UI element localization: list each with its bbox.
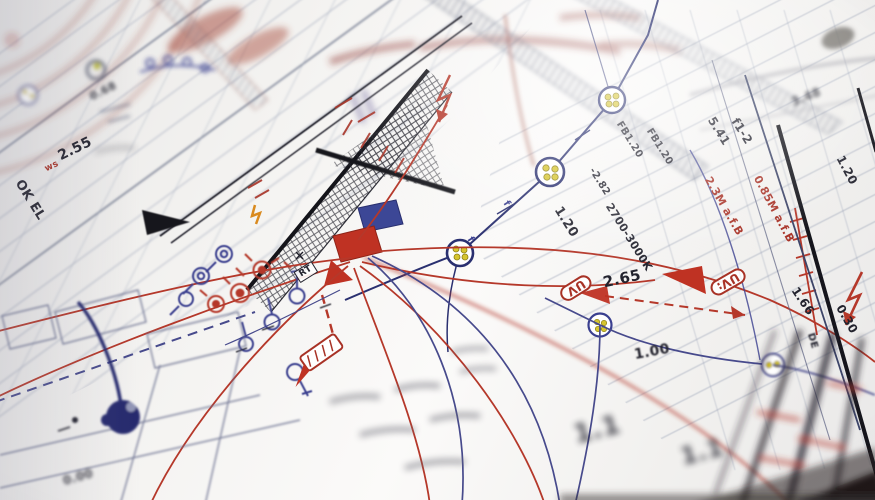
thermostat-label-rt: RT [294,261,319,283]
photo-of-electrical-plan: 2.55wsOK EL0.682.651.001.202700-3000KFB1… [0,0,875,500]
dim-label-1-20-b: 1.20 [834,154,859,187]
dim-label-2-55: 2.55 [56,135,94,163]
distribution-label-uv-left: UV [557,272,594,303]
dim-label-ok-el: OK EL [13,178,48,222]
dim-label-1-00: 1.00 [633,342,671,362]
dim-label-2-3m-afb: 2.3M a.f.B [703,175,745,237]
dim-label-0-30: 0.30 [834,303,860,336]
dim-label-0-68: 0.68 [88,80,118,102]
dim-label-fb1-20-b: FB1.20 [644,127,674,167]
dim-label-0-00: 0.00 [62,467,95,487]
dim-label-2700-3000k: 2700-3000K [604,201,654,272]
dim-label-de: DE [805,332,819,350]
dim-label-f1-2: f1-2 [729,116,754,146]
dim-label-0-85m-afb: 0.85M a.f.B [752,174,796,244]
fixture-mark-f-a: f [501,199,512,208]
dim-label-fb1-20-a: FB1.20 [614,120,644,160]
dim-label-1-1-a: 1.1 [571,412,623,449]
dimension-labels-layer: 2.55wsOK EL0.682.651.001.202700-3000KFB1… [0,0,875,500]
dim-label-3-48: 3.48 [789,86,822,109]
dim-label-1-20-a: 1.20 [552,204,581,239]
dim-label-ws: ws [44,160,61,174]
distribution-label-uv-right: UV: [707,266,748,299]
dim-label-1-66: 1.66 [789,285,816,317]
dim-label-1-1-b: 1.1 [678,435,726,469]
dim-label-5-41: 5.41 [706,115,733,147]
fixture-mark-f-b: f [465,235,476,244]
dim-label-2-65: 2.65 [602,268,643,291]
dim-label-minus-2-82: -2.82 [587,166,612,197]
